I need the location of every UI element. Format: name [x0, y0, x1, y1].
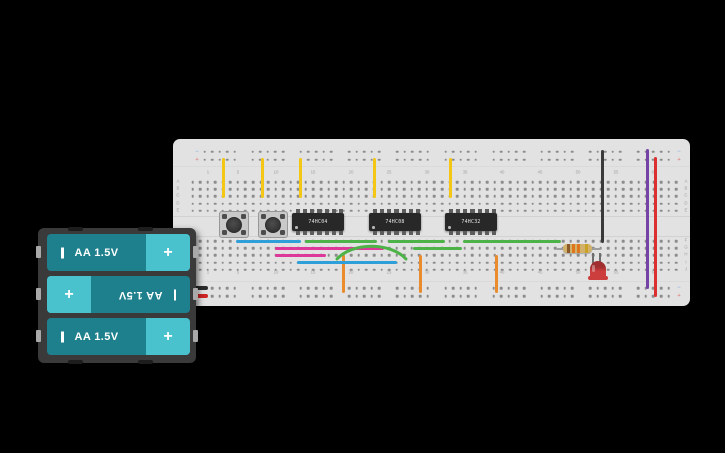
breadboard-hole[interactable]: [637, 210, 640, 213]
breadboard-hole[interactable]: [486, 181, 489, 184]
breadboard-hole[interactable]: [563, 287, 566, 290]
breadboard-hole[interactable]: [433, 254, 436, 257]
breadboard-hole[interactable]: [370, 150, 373, 153]
breadboard-hole[interactable]: [675, 254, 678, 257]
breadboard-hole[interactable]: [667, 150, 670, 153]
breadboard-hole[interactable]: [363, 158, 366, 161]
breadboard-hole[interactable]: [619, 158, 622, 161]
breadboard-hole[interactable]: [615, 210, 618, 213]
breadboard-hole[interactable]: [355, 158, 358, 161]
breadboard-hole[interactable]: [571, 158, 574, 161]
breadboard-hole[interactable]: [459, 287, 462, 290]
breadboard-hole[interactable]: [463, 247, 466, 250]
breadboard-hole[interactable]: [419, 150, 422, 153]
breadboard-hole[interactable]: [471, 195, 474, 198]
breadboard-hole[interactable]: [569, 210, 572, 213]
breadboard-hole[interactable]: [667, 254, 670, 257]
breadboard-hole[interactable]: [478, 269, 481, 272]
breadboard-hole[interactable]: [199, 202, 202, 205]
breadboard-hole[interactable]: [474, 287, 477, 290]
breadboard-hole[interactable]: [660, 181, 663, 184]
breadboard-hole[interactable]: [342, 195, 345, 198]
breadboard-hole[interactable]: [501, 261, 504, 264]
breadboard-hole[interactable]: [508, 287, 511, 290]
breadboard-hole[interactable]: [237, 195, 240, 198]
breadboard-hole[interactable]: [395, 202, 398, 205]
breadboard-hole[interactable]: [637, 240, 640, 243]
ic-chip-74hc08[interactable]: 74HC08: [369, 213, 421, 231]
breadboard-hole[interactable]: [596, 158, 599, 161]
breadboard-hole[interactable]: [577, 181, 580, 184]
breadboard-hole[interactable]: [509, 188, 512, 191]
breadboard-hole[interactable]: [630, 188, 633, 191]
breadboard-hole[interactable]: [342, 181, 345, 184]
breadboard-hole[interactable]: [501, 181, 504, 184]
breadboard-hole[interactable]: [523, 150, 526, 153]
breadboard-hole[interactable]: [214, 269, 217, 272]
breadboard-hole[interactable]: [312, 181, 315, 184]
breadboard-hole[interactable]: [547, 195, 550, 198]
breadboard-hole[interactable]: [226, 158, 229, 161]
breadboard-hole[interactable]: [607, 195, 610, 198]
breadboard-hole[interactable]: [516, 254, 519, 257]
breadboard-hole[interactable]: [509, 261, 512, 264]
breadboard-hole[interactable]: [203, 150, 206, 153]
breadboard-hole[interactable]: [199, 188, 202, 191]
breadboard-hole[interactable]: [307, 295, 310, 298]
ic-chip-74hc04[interactable]: 74HC04: [292, 213, 344, 231]
breadboard-hole[interactable]: [539, 247, 542, 250]
breadboard-hole[interactable]: [426, 202, 429, 205]
breadboard-hole[interactable]: [577, 210, 580, 213]
breadboard-hole[interactable]: [237, 247, 240, 250]
breadboard-hole[interactable]: [509, 247, 512, 250]
breadboard-hole[interactable]: [267, 254, 270, 257]
breadboard-hole[interactable]: [229, 195, 232, 198]
breadboard-hole[interactable]: [282, 188, 285, 191]
breadboard-hole[interactable]: [403, 188, 406, 191]
breadboard-hole[interactable]: [433, 188, 436, 191]
breadboard-hole[interactable]: [541, 150, 544, 153]
breadboard-hole[interactable]: [524, 188, 527, 191]
breadboard-hole[interactable]: [233, 150, 236, 153]
breadboard-hole[interactable]: [471, 202, 474, 205]
breadboard-hole[interactable]: [501, 210, 504, 213]
breadboard-hole[interactable]: [206, 181, 209, 184]
breadboard-hole[interactable]: [592, 195, 595, 198]
breadboard-hole[interactable]: [244, 202, 247, 205]
breadboard-hole[interactable]: [410, 254, 413, 257]
breadboard-hole[interactable]: [448, 261, 451, 264]
breadboard-hole[interactable]: [396, 287, 399, 290]
breadboard-hole[interactable]: [463, 188, 466, 191]
breadboard-hole[interactable]: [675, 240, 678, 243]
breadboard-hole[interactable]: [396, 158, 399, 161]
breadboard-hole[interactable]: [571, 287, 574, 290]
breadboard-hole[interactable]: [363, 150, 366, 153]
breadboard-hole[interactable]: [660, 210, 663, 213]
breadboard-hole[interactable]: [637, 181, 640, 184]
breadboard-hole[interactable]: [410, 188, 413, 191]
breadboard-hole[interactable]: [515, 287, 518, 290]
breadboard-hole[interactable]: [244, 247, 247, 250]
breadboard-hole[interactable]: [562, 181, 565, 184]
breadboard-hole[interactable]: [388, 188, 391, 191]
breadboard-hole[interactable]: [282, 287, 285, 290]
breadboard-hole[interactable]: [358, 181, 361, 184]
breadboard-hole[interactable]: [363, 295, 366, 298]
breadboard-hole[interactable]: [448, 254, 451, 257]
breadboard-hole[interactable]: [322, 150, 325, 153]
breadboard-hole[interactable]: [541, 287, 544, 290]
breadboard-hole[interactable]: [237, 181, 240, 184]
breadboard-hole[interactable]: [556, 287, 559, 290]
breadboard-hole[interactable]: [342, 188, 345, 191]
breadboard-hole[interactable]: [531, 181, 534, 184]
breadboard-hole[interactable]: [660, 202, 663, 205]
breadboard-hole[interactable]: [259, 295, 262, 298]
breadboard-hole[interactable]: [358, 202, 361, 205]
button-cap[interactable]: [226, 217, 242, 233]
breadboard-hole[interactable]: [596, 150, 599, 153]
breadboard-hole[interactable]: [267, 247, 270, 250]
breadboard-hole[interactable]: [675, 202, 678, 205]
breadboard-hole[interactable]: [622, 240, 625, 243]
breadboard-hole[interactable]: [516, 269, 519, 272]
breadboard-hole[interactable]: [289, 195, 292, 198]
breadboard-hole[interactable]: [199, 240, 202, 243]
breadboard-hole[interactable]: [492, 158, 495, 161]
breadboard-hole[interactable]: [214, 261, 217, 264]
breadboard-hole[interactable]: [500, 158, 503, 161]
breadboard-hole[interactable]: [456, 254, 459, 257]
breadboard-hole[interactable]: [541, 295, 544, 298]
breadboard-hole[interactable]: [426, 254, 429, 257]
breadboard-hole[interactable]: [516, 202, 519, 205]
breadboard-hole[interactable]: [563, 150, 566, 153]
breadboard-hole[interactable]: [206, 247, 209, 250]
wire-yellow-4[interactable]: [373, 158, 376, 198]
breadboard-hole[interactable]: [350, 181, 353, 184]
breadboard-hole[interactable]: [335, 195, 338, 198]
breadboard-hole[interactable]: [494, 195, 497, 198]
breadboard-hole[interactable]: [604, 158, 607, 161]
breadboard-hole[interactable]: [531, 202, 534, 205]
breadboard-hole[interactable]: [289, 181, 292, 184]
breadboard-hole[interactable]: [541, 158, 544, 161]
breadboard-hole[interactable]: [562, 188, 565, 191]
breadboard-hole[interactable]: [259, 261, 262, 264]
breadboard-hole[interactable]: [467, 150, 470, 153]
breadboard-hole[interactable]: [607, 210, 610, 213]
breadboard-hole[interactable]: [199, 247, 202, 250]
breadboard-hole[interactable]: [307, 158, 310, 161]
breadboard-hole[interactable]: [395, 195, 398, 198]
breadboard-hole[interactable]: [615, 195, 618, 198]
breadboard-hole[interactable]: [456, 240, 459, 243]
breadboard-hole[interactable]: [660, 254, 663, 257]
breadboard-hole[interactable]: [478, 247, 481, 250]
breadboard-hole[interactable]: [404, 295, 407, 298]
breadboard-hole[interactable]: [456, 261, 459, 264]
breadboard-hole[interactable]: [237, 261, 240, 264]
breadboard-hole[interactable]: [410, 261, 413, 264]
breadboard-hole[interactable]: [494, 202, 497, 205]
wire-green-3[interactable]: [463, 240, 561, 243]
breadboard-hole[interactable]: [315, 150, 318, 153]
breadboard-hole[interactable]: [604, 287, 607, 290]
breadboard-hole[interactable]: [577, 188, 580, 191]
breadboard-hole[interactable]: [660, 295, 663, 298]
breadboard-hole[interactable]: [508, 150, 511, 153]
breadboard-hole[interactable]: [411, 295, 414, 298]
breadboard-hole[interactable]: [667, 202, 670, 205]
breadboard-hole[interactable]: [667, 287, 670, 290]
breadboard-hole[interactable]: [355, 287, 358, 290]
ic-chip-74hc32[interactable]: 74HC32: [445, 213, 497, 231]
breadboard-hole[interactable]: [584, 188, 587, 191]
breadboard-hole[interactable]: [191, 195, 194, 198]
breadboard-hole[interactable]: [267, 158, 270, 161]
breadboard-hole[interactable]: [637, 202, 640, 205]
breadboard-hole[interactable]: [456, 188, 459, 191]
breadboard-hole[interactable]: [370, 295, 373, 298]
breadboard-hole[interactable]: [433, 195, 436, 198]
breadboard-hole[interactable]: [211, 295, 214, 298]
breadboard-hole[interactable]: [378, 150, 381, 153]
breadboard-hole[interactable]: [492, 295, 495, 298]
breadboard-hole[interactable]: [218, 295, 221, 298]
breadboard-hole[interactable]: [237, 254, 240, 257]
wire-orange-3[interactable]: [495, 255, 498, 293]
breadboard-hole[interactable]: [562, 269, 565, 272]
breadboard-hole[interactable]: [206, 202, 209, 205]
led[interactable]: [586, 252, 610, 282]
breadboard-hole[interactable]: [486, 269, 489, 272]
breadboard-hole[interactable]: [289, 261, 292, 264]
breadboard-hole[interactable]: [267, 150, 270, 153]
breadboard-hole[interactable]: [584, 210, 587, 213]
breadboard-hole[interactable]: [229, 202, 232, 205]
breadboard-hole[interactable]: [524, 254, 527, 257]
breadboard-hole[interactable]: [467, 295, 470, 298]
breadboard-hole[interactable]: [251, 158, 254, 161]
breadboard-hole[interactable]: [289, 188, 292, 191]
breadboard-hole[interactable]: [327, 254, 330, 257]
breadboard-hole[interactable]: [320, 269, 323, 272]
breadboard-hole[interactable]: [444, 295, 447, 298]
breadboard-hole[interactable]: [218, 150, 221, 153]
breadboard-hole[interactable]: [637, 261, 640, 264]
breadboard-hole[interactable]: [320, 181, 323, 184]
breadboard-hole[interactable]: [300, 150, 303, 153]
breadboard-hole[interactable]: [305, 269, 308, 272]
breadboard-hole[interactable]: [274, 195, 277, 198]
breadboard-hole[interactable]: [577, 202, 580, 205]
breadboard-hole[interactable]: [660, 247, 663, 250]
breadboard-hole[interactable]: [500, 287, 503, 290]
breadboard-hole[interactable]: [563, 295, 566, 298]
breadboard-hole[interactable]: [630, 254, 633, 257]
breadboard-hole[interactable]: [607, 240, 610, 243]
breadboard-hole[interactable]: [282, 181, 285, 184]
breadboard-hole[interactable]: [330, 158, 333, 161]
breadboard-hole[interactable]: [199, 254, 202, 257]
breadboard-hole[interactable]: [478, 254, 481, 257]
breadboard-hole[interactable]: [426, 261, 429, 264]
breadboard-hole[interactable]: [267, 202, 270, 205]
breadboard-hole[interactable]: [355, 150, 358, 153]
breadboard-hole[interactable]: [199, 181, 202, 184]
breadboard-hole[interactable]: [348, 287, 351, 290]
breadboard-hole[interactable]: [282, 295, 285, 298]
breadboard-hole[interactable]: [556, 150, 559, 153]
breadboard-hole[interactable]: [569, 269, 572, 272]
breadboard-hole[interactable]: [199, 210, 202, 213]
breadboard-hole[interactable]: [637, 269, 640, 272]
breadboard-hole[interactable]: [312, 195, 315, 198]
breadboard-hole[interactable]: [327, 195, 330, 198]
breadboard-hole[interactable]: [342, 202, 345, 205]
breadboard-hole[interactable]: [547, 210, 550, 213]
breadboard-hole[interactable]: [577, 261, 580, 264]
breadboard-hole[interactable]: [358, 210, 361, 213]
breadboard-hole[interactable]: [267, 181, 270, 184]
breadboard-hole[interactable]: [523, 287, 526, 290]
breadboard-hole[interactable]: [619, 150, 622, 153]
breadboard-hole[interactable]: [667, 295, 670, 298]
breadboard-hole[interactable]: [622, 195, 625, 198]
breadboard-hole[interactable]: [433, 269, 436, 272]
breadboard-hole[interactable]: [569, 240, 572, 243]
breadboard-hole[interactable]: [282, 158, 285, 161]
breadboard-hole[interactable]: [547, 247, 550, 250]
breadboard-hole[interactable]: [282, 150, 285, 153]
breadboard-hole[interactable]: [433, 261, 436, 264]
wire-yellow-5[interactable]: [449, 158, 452, 198]
breadboard-hole[interactable]: [327, 188, 330, 191]
breadboard-hole[interactable]: [509, 269, 512, 272]
battery-pack[interactable]: AA 1.5V + + AA 1.5V AA 1.5V +: [38, 228, 196, 363]
breadboard-hole[interactable]: [531, 261, 534, 264]
breadboard-hole[interactable]: [214, 240, 217, 243]
breadboard-hole[interactable]: [229, 188, 232, 191]
breadboard-hole[interactable]: [330, 287, 333, 290]
breadboard-hole[interactable]: [562, 195, 565, 198]
breadboard-hole[interactable]: [418, 195, 421, 198]
breadboard-hole[interactable]: [322, 295, 325, 298]
breadboard-hole[interactable]: [509, 195, 512, 198]
breadboard-hole[interactable]: [548, 287, 551, 290]
breadboard-hole[interactable]: [411, 158, 414, 161]
breadboard-hole[interactable]: [252, 210, 255, 213]
breadboard-hole[interactable]: [630, 181, 633, 184]
breadboard-hole[interactable]: [547, 254, 550, 257]
breadboard-hole[interactable]: [267, 295, 270, 298]
breadboard-hole[interactable]: [516, 210, 519, 213]
breadboard-hole[interactable]: [474, 295, 477, 298]
breadboard-hole[interactable]: [191, 202, 194, 205]
wire-red[interactable]: [654, 157, 657, 297]
breadboard-hole[interactable]: [569, 202, 572, 205]
breadboard-hole[interactable]: [494, 247, 497, 250]
breadboard-hole[interactable]: [459, 158, 462, 161]
breadboard-hole[interactable]: [554, 269, 557, 272]
breadboard-hole[interactable]: [637, 254, 640, 257]
breadboard-hole[interactable]: [191, 188, 194, 191]
breadboard-hole[interactable]: [315, 295, 318, 298]
breadboard-hole[interactable]: [619, 295, 622, 298]
breadboard-hole[interactable]: [259, 287, 262, 290]
breadboard-hole[interactable]: [229, 240, 232, 243]
breadboard-hole[interactable]: [252, 202, 255, 205]
breadboard-hole[interactable]: [539, 202, 542, 205]
breadboard-hole[interactable]: [267, 195, 270, 198]
breadboard-hole[interactable]: [335, 202, 338, 205]
breadboard-hole[interactable]: [350, 195, 353, 198]
breadboard-hole[interactable]: [637, 158, 640, 161]
breadboard-hole[interactable]: [380, 269, 383, 272]
breadboard-hole[interactable]: [203, 158, 206, 161]
breadboard-hole[interactable]: [675, 269, 678, 272]
breadboard-hole[interactable]: [244, 269, 247, 272]
breadboard-hole[interactable]: [547, 188, 550, 191]
breadboard-hole[interactable]: [395, 181, 398, 184]
breadboard-hole[interactable]: [463, 254, 466, 257]
breadboard-hole[interactable]: [556, 295, 559, 298]
breadboard-hole[interactable]: [244, 254, 247, 257]
wire-blue-1[interactable]: [236, 240, 301, 243]
breadboard-hole[interactable]: [501, 202, 504, 205]
breadboard-hole[interactable]: [660, 240, 663, 243]
breadboard-hole[interactable]: [562, 202, 565, 205]
breadboard-hole[interactable]: [418, 202, 421, 205]
breadboard-hole[interactable]: [251, 150, 254, 153]
breadboard-hole[interactable]: [297, 269, 300, 272]
breadboard-hole[interactable]: [237, 202, 240, 205]
breadboard-hole[interactable]: [478, 181, 481, 184]
breadboard-hole[interactable]: [274, 202, 277, 205]
breadboard-hole[interactable]: [554, 261, 557, 264]
breadboard-hole[interactable]: [259, 150, 262, 153]
breadboard-hole[interactable]: [358, 188, 361, 191]
breadboard-hole[interactable]: [486, 195, 489, 198]
breadboard-hole[interactable]: [274, 287, 277, 290]
breadboard-hole[interactable]: [418, 188, 421, 191]
breadboard-hole[interactable]: [380, 195, 383, 198]
breadboard-hole[interactable]: [218, 287, 221, 290]
breadboard-hole[interactable]: [282, 195, 285, 198]
breadboard-hole[interactable]: [426, 150, 429, 153]
breadboard-hole[interactable]: [471, 181, 474, 184]
breadboard-hole[interactable]: [584, 240, 587, 243]
breadboard-hole[interactable]: [667, 210, 670, 213]
breadboard-hole[interactable]: [267, 261, 270, 264]
breadboard-hole[interactable]: [335, 188, 338, 191]
breadboard-hole[interactable]: [348, 158, 351, 161]
wire-magenta-2[interactable]: [275, 254, 326, 257]
breadboard-hole[interactable]: [320, 202, 323, 205]
breadboard-hole[interactable]: [508, 158, 511, 161]
breadboard-hole[interactable]: [441, 210, 444, 213]
breadboard-hole[interactable]: [675, 261, 678, 264]
breadboard-hole[interactable]: [380, 202, 383, 205]
breadboard-hole[interactable]: [478, 202, 481, 205]
breadboard-hole[interactable]: [509, 210, 512, 213]
breadboard-hole[interactable]: [206, 210, 209, 213]
breadboard-hole[interactable]: [456, 181, 459, 184]
breadboard-hole[interactable]: [592, 210, 595, 213]
